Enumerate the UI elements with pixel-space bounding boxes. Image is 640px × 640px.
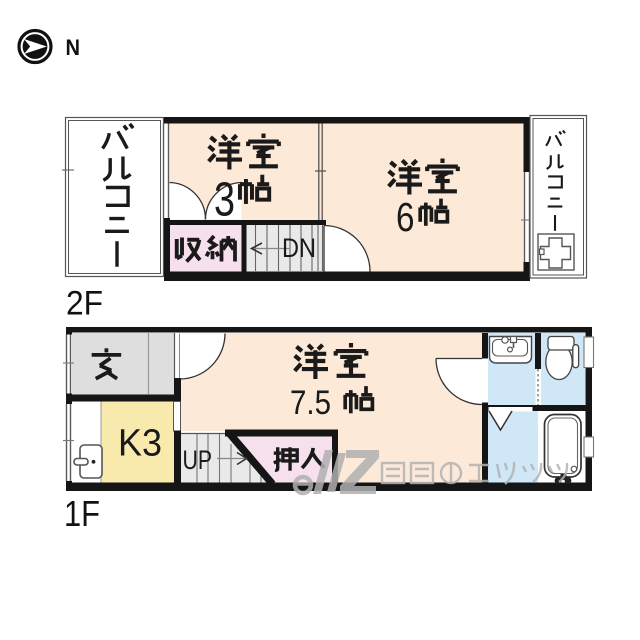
svg-text:6: 6 xyxy=(396,194,415,240)
svg-text:2F: 2F xyxy=(66,285,103,323)
svg-text:3: 3 xyxy=(214,174,235,227)
svg-text:UP: UP xyxy=(183,445,213,475)
svg-text:1F: 1F xyxy=(64,493,100,534)
svg-text:N: N xyxy=(66,35,81,60)
svg-text:K3: K3 xyxy=(118,423,162,465)
svg-text:7.5: 7.5 xyxy=(290,384,331,422)
svg-text:DN: DN xyxy=(282,233,316,263)
